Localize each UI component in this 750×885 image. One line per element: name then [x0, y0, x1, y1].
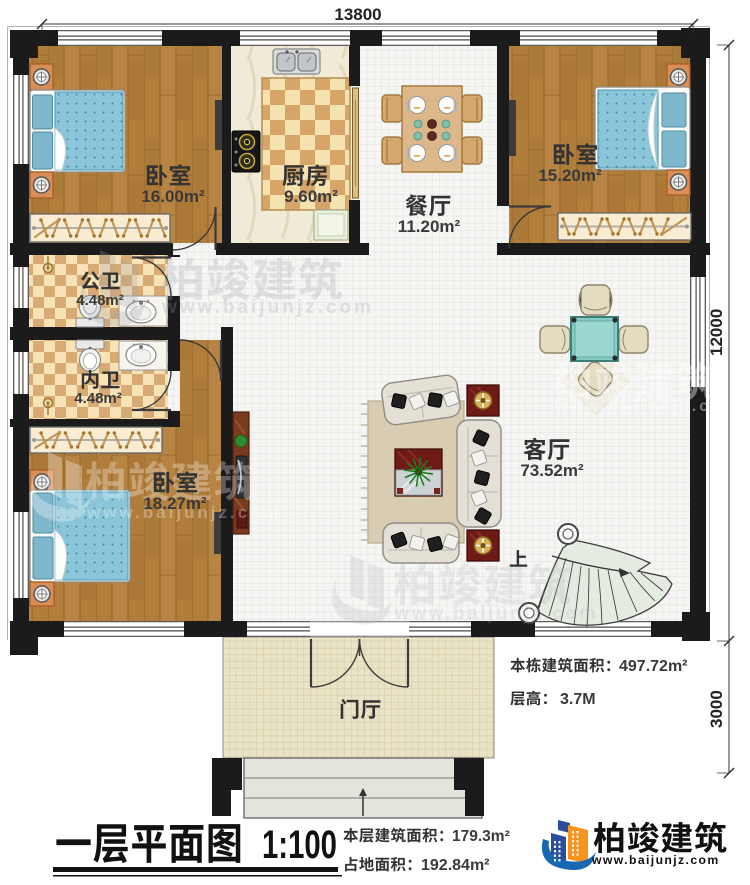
svg-text:13800: 13800	[334, 5, 381, 24]
svg-text:1:100: 1:100	[262, 823, 337, 867]
svg-text:www.baijunjz.com: www.baijunjz.com	[591, 853, 720, 867]
svg-text:3.7M: 3.7M	[560, 691, 596, 708]
svg-text:179.3m²: 179.3m²	[452, 828, 510, 845]
svg-text:16.00m²: 16.00m²	[141, 187, 205, 206]
svg-text:73.52m²: 73.52m²	[520, 461, 584, 480]
svg-text:3000: 3000	[707, 690, 726, 728]
svg-text:www.baijunjz.com: www.baijunjz.com	[394, 603, 598, 623]
svg-text:497.72m²: 497.72m²	[619, 658, 688, 675]
svg-text:www.baijunjz.com: www.baijunjz.com	[554, 398, 741, 415]
svg-text:12000: 12000	[707, 309, 726, 356]
svg-text:4.48m²: 4.48m²	[76, 292, 124, 309]
svg-text:9.60m²: 9.60m²	[284, 187, 338, 206]
svg-text:192.84m²: 192.84m²	[421, 857, 490, 874]
svg-text:www.baijunjz.com: www.baijunjz.com	[161, 297, 374, 318]
svg-text:15.20m²: 15.20m²	[538, 166, 602, 185]
svg-text:4.48m²: 4.48m²	[74, 390, 122, 407]
svg-text:11.20m²: 11.20m²	[398, 217, 461, 236]
svg-text:18.27m²: 18.27m²	[143, 494, 207, 513]
